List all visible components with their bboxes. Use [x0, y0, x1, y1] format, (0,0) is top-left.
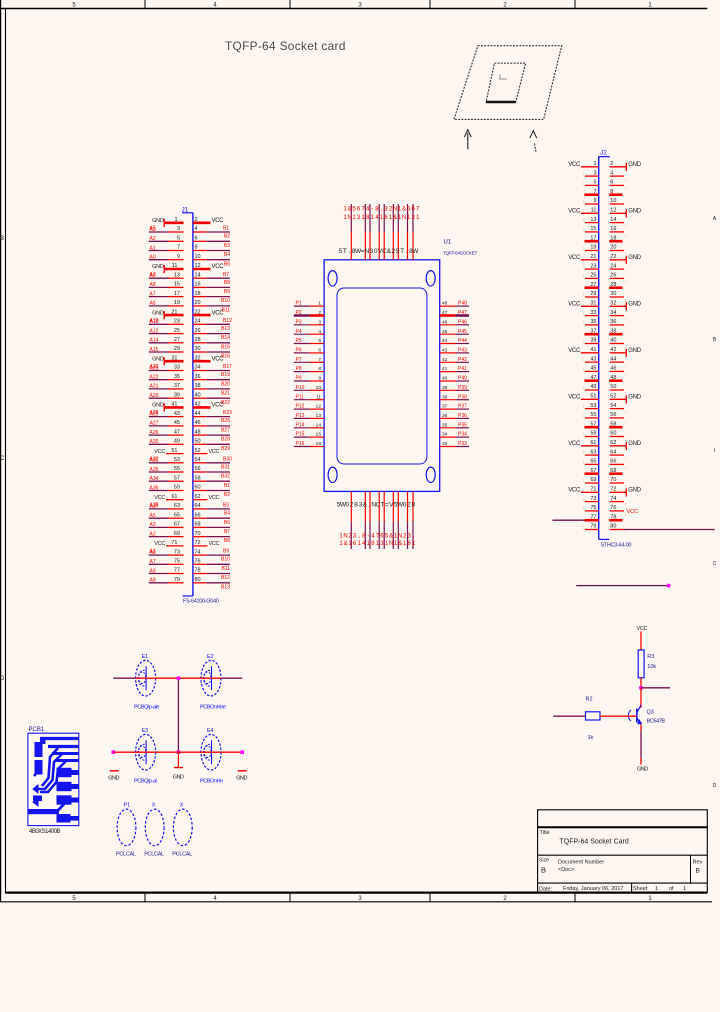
svg-text:VCC: VCC	[568, 162, 581, 168]
svg-text:39: 39	[590, 338, 596, 344]
svg-text:7: 7	[177, 245, 180, 251]
svg-text:.: .	[406, 248, 408, 255]
svg-text:B: B	[0, 236, 4, 242]
svg-text:P41: P41	[458, 366, 467, 372]
svg-text:46: 46	[442, 319, 448, 325]
svg-text:24: 24	[195, 319, 201, 325]
svg-text:67: 67	[174, 522, 180, 528]
svg-text:GND: GND	[152, 403, 164, 409]
svg-text:6: 6	[610, 180, 613, 186]
svg-text:E2: E2	[207, 654, 214, 660]
svg-text::: :	[625, 465, 626, 470]
svg-text:54: 54	[195, 457, 201, 463]
svg-text:78: 78	[610, 514, 616, 520]
svg-text:3: 3	[177, 226, 180, 232]
svg-text:P8: P8	[296, 366, 302, 372]
svg-text:N: N	[347, 215, 351, 221]
svg-text:P46: P46	[458, 319, 467, 325]
svg-text:48: 48	[610, 375, 616, 381]
svg-text:GND: GND	[628, 395, 641, 401]
svg-text:25: 25	[590, 273, 596, 279]
svg-text:55: 55	[590, 412, 596, 418]
svg-text:19: 19	[590, 245, 596, 251]
svg-text::: :	[625, 177, 626, 182]
svg-text:&: &	[393, 215, 397, 221]
svg-text::: :	[625, 186, 626, 191]
svg-text:P7: P7	[296, 357, 302, 363]
svg-text:A7: A7	[150, 559, 156, 565]
svg-text:55: 55	[174, 466, 180, 472]
svg-text::: :	[625, 223, 626, 228]
svg-text:B9: B9	[224, 289, 230, 295]
svg-text:P45: P45	[458, 329, 467, 335]
svg-text:VCC: VCC	[568, 255, 581, 261]
svg-text:VCC: VCC	[209, 495, 220, 501]
svg-text:57: 57	[590, 421, 596, 427]
svg-text:14: 14	[316, 422, 322, 428]
svg-text:GND: GND	[628, 255, 641, 261]
svg-text:13: 13	[316, 413, 322, 419]
svg-text:PCLCAL: PCLCAL	[116, 852, 136, 858]
svg-text:P43: P43	[458, 348, 467, 354]
svg-text:B12: B12	[223, 318, 232, 324]
svg-text:32: 32	[195, 355, 201, 361]
svg-text::: :	[583, 246, 584, 251]
svg-text:Sheet: Sheet	[633, 886, 648, 892]
svg-text:8: 8	[354, 502, 358, 509]
svg-text:C: C	[0, 456, 5, 462]
svg-text:P2: P2	[296, 310, 302, 316]
svg-text:31: 31	[590, 301, 596, 307]
svg-text:A1: A1	[150, 245, 156, 251]
svg-text:A30: A30	[150, 439, 159, 445]
svg-text:VCC: VCC	[154, 449, 165, 455]
svg-text::: :	[583, 497, 584, 502]
svg-text:28: 28	[610, 282, 616, 288]
svg-text:38: 38	[442, 394, 448, 400]
svg-text:FS-64100-G040: FS-64100-G040	[183, 599, 219, 605]
svg-text:T: T	[343, 248, 347, 255]
svg-text:48: 48	[195, 429, 201, 435]
svg-text:A20: A20	[150, 393, 159, 399]
svg-text:11: 11	[591, 208, 597, 214]
svg-text:9: 9	[318, 376, 321, 382]
svg-text:12: 12	[316, 404, 322, 410]
svg-text:2: 2	[350, 502, 354, 509]
svg-text:A2: A2	[150, 236, 156, 242]
svg-text:VCC: VCC	[154, 541, 165, 547]
svg-text:51: 51	[590, 394, 596, 400]
svg-text:2: 2	[318, 310, 321, 316]
svg-text::: :	[625, 437, 626, 442]
svg-text:4: 4	[610, 170, 613, 176]
svg-text:21: 21	[590, 254, 596, 260]
svg-text:80: 80	[610, 524, 616, 530]
svg-text:B10: B10	[221, 298, 230, 304]
svg-text:36: 36	[442, 413, 448, 419]
svg-text:T: T	[381, 502, 385, 509]
svg-text:35: 35	[590, 319, 596, 325]
svg-text::: :	[583, 264, 584, 269]
svg-text:76: 76	[610, 505, 616, 511]
svg-text:B27: B27	[221, 428, 230, 434]
svg-text:B14: B14	[221, 335, 230, 341]
svg-text:2: 2	[407, 502, 411, 509]
svg-text:&: &	[389, 534, 393, 540]
svg-text:17: 17	[174, 291, 180, 297]
svg-text:GND: GND	[628, 209, 641, 215]
svg-text:VCC: VCC	[212, 264, 225, 270]
svg-text:64: 64	[195, 503, 201, 509]
svg-text:B31: B31	[221, 464, 230, 470]
svg-text:16: 16	[610, 226, 616, 232]
svg-text:42: 42	[195, 402, 201, 408]
svg-text:42: 42	[442, 357, 448, 363]
svg-text:38: 38	[610, 328, 616, 334]
svg-text:Q3: Q3	[647, 710, 654, 716]
svg-text:49: 49	[174, 439, 180, 445]
svg-text:Friday, January 06, 2017: Friday, January 06, 2017	[563, 886, 623, 892]
svg-text:23: 23	[590, 263, 596, 269]
svg-text:GND: GND	[637, 767, 648, 773]
svg-text:18: 18	[610, 235, 616, 241]
svg-text::: :	[583, 506, 584, 511]
svg-text:75: 75	[590, 505, 596, 511]
svg-text::: :	[625, 409, 626, 414]
svg-text::: :	[625, 279, 626, 284]
svg-text:46: 46	[195, 420, 201, 426]
svg-text:P1: P1	[124, 803, 131, 809]
svg-text:VCC: VCC	[627, 509, 639, 515]
svg-text:VCC: VCC	[212, 356, 225, 362]
svg-text:B23: B23	[223, 410, 232, 416]
svg-text:A12: A12	[150, 328, 159, 334]
svg-text:52: 52	[195, 448, 201, 454]
svg-text:B32: B32	[221, 474, 230, 480]
svg-text:4: 4	[195, 226, 198, 232]
svg-text:A36: A36	[150, 485, 159, 491]
svg-text:A6: A6	[150, 301, 156, 307]
svg-text:5: 5	[593, 180, 596, 186]
svg-text::: :	[583, 199, 584, 204]
svg-text:P40: P40	[458, 376, 467, 382]
svg-text:VCC: VCC	[637, 626, 648, 632]
svg-text:35: 35	[442, 422, 448, 428]
svg-text:X: X	[180, 803, 184, 809]
svg-text:53: 53	[590, 403, 596, 409]
svg-text::: :	[625, 502, 626, 507]
svg-text:51: 51	[171, 448, 177, 454]
svg-text::: :	[583, 273, 584, 278]
svg-text::: :	[583, 292, 584, 297]
svg-text:P38: P38	[458, 394, 467, 400]
svg-text:T: T	[400, 248, 404, 255]
svg-text:P9: P9	[296, 376, 302, 382]
svg-text:10: 10	[610, 198, 616, 204]
svg-text:P35: P35	[458, 422, 467, 428]
svg-text:49: 49	[590, 384, 596, 390]
svg-text:42: 42	[610, 347, 616, 353]
svg-text:-: -	[367, 534, 369, 540]
svg-text:VCC: VCC	[568, 441, 581, 447]
svg-text:7: 7	[318, 357, 321, 363]
svg-text:65: 65	[590, 459, 596, 465]
svg-text:34: 34	[442, 432, 448, 438]
svg-text:43: 43	[590, 356, 596, 362]
svg-text:44: 44	[442, 338, 448, 344]
svg-text:P34: P34	[458, 432, 467, 438]
svg-text:34: 34	[195, 365, 201, 371]
svg-text:11: 11	[316, 394, 321, 400]
svg-text:B20: B20	[221, 381, 230, 387]
svg-text:B2: B2	[224, 234, 230, 240]
svg-text::: :	[625, 372, 626, 377]
svg-text:Size: Size	[539, 858, 549, 864]
svg-text:30: 30	[195, 346, 201, 352]
svg-text:P10: P10	[296, 385, 305, 391]
svg-text::: :	[625, 456, 626, 461]
svg-text:PCBOnHn: PCBOnHn	[200, 779, 223, 785]
svg-text:3: 3	[593, 170, 596, 176]
svg-text:P1: P1	[296, 301, 302, 307]
svg-text:53: 53	[174, 457, 180, 463]
svg-text:41: 41	[442, 366, 448, 372]
svg-text:37: 37	[174, 383, 180, 389]
svg-text:69: 69	[174, 531, 180, 537]
svg-text:73: 73	[174, 549, 180, 555]
svg-text:A0: A0	[150, 255, 156, 261]
svg-text:P47: P47	[458, 310, 467, 316]
svg-text:61: 61	[590, 440, 596, 446]
svg-text:B11: B11	[221, 566, 230, 572]
svg-text:A26: A26	[150, 430, 159, 436]
svg-text:36: 36	[195, 374, 201, 380]
svg-text:Title: Title	[540, 830, 550, 836]
svg-text:Rev: Rev	[693, 860, 703, 866]
svg-text:11: 11	[172, 263, 178, 269]
svg-text:P4: P4	[296, 329, 302, 335]
svg-text:70: 70	[610, 477, 616, 483]
svg-text:41: 41	[171, 402, 177, 408]
svg-text:23: 23	[174, 319, 180, 325]
svg-text:P5: P5	[296, 338, 302, 344]
svg-text:B2: B2	[224, 492, 230, 498]
svg-text:A35: A35	[150, 467, 159, 473]
svg-text:79: 79	[590, 524, 596, 530]
svg-text:5: 5	[177, 236, 180, 242]
svg-text:22: 22	[195, 309, 201, 315]
svg-text:37: 37	[590, 328, 596, 334]
svg-text:GND: GND	[152, 356, 164, 362]
svg-text:13: 13	[590, 217, 596, 223]
svg-text:A37: A37	[150, 504, 159, 510]
svg-text:10k: 10k	[647, 664, 656, 670]
svg-text:22: 22	[610, 254, 616, 260]
svg-text:A27: A27	[150, 421, 159, 427]
svg-text:12: 12	[610, 208, 616, 214]
svg-text:2: 2	[195, 217, 198, 223]
svg-text:-: -	[371, 207, 373, 213]
svg-text:P16: P16	[296, 441, 305, 447]
svg-text:40: 40	[442, 376, 448, 382]
svg-text:15: 15	[174, 282, 180, 288]
svg-text:59: 59	[590, 431, 596, 437]
svg-text:VCC: VCC	[154, 495, 165, 501]
svg-text:28: 28	[195, 337, 201, 343]
svg-text:B3: B3	[223, 503, 229, 509]
svg-text:37: 37	[442, 404, 448, 410]
svg-text:P14: P14	[296, 422, 305, 428]
svg-text:VCC: VCC	[568, 209, 581, 215]
svg-text:A9: A9	[150, 568, 156, 574]
svg-text:P48: P48	[458, 301, 467, 307]
svg-text:A22: A22	[150, 375, 159, 381]
svg-text:0: 0	[403, 502, 407, 509]
svg-text:GND: GND	[628, 348, 641, 354]
svg-text::: :	[583, 180, 584, 185]
svg-text:79: 79	[174, 577, 180, 583]
svg-text:47: 47	[174, 429, 180, 435]
svg-text:72: 72	[195, 540, 201, 546]
svg-text:26: 26	[610, 273, 616, 279]
svg-text:B30: B30	[223, 456, 232, 462]
svg-text:B7: B7	[223, 272, 229, 278]
svg-text:10: 10	[195, 254, 201, 260]
svg-text:B28: B28	[221, 437, 230, 443]
svg-text:62: 62	[610, 440, 616, 446]
svg-text:39: 39	[442, 385, 448, 391]
svg-text::: :	[583, 311, 584, 316]
svg-text:&: &	[344, 541, 348, 547]
svg-text:18: 18	[195, 291, 201, 297]
svg-text:60: 60	[610, 431, 616, 437]
svg-text:33: 33	[590, 310, 596, 316]
svg-text:&: &	[363, 502, 368, 509]
svg-text:58: 58	[610, 421, 616, 427]
svg-text:39: 39	[174, 392, 180, 398]
svg-text:B26: B26	[221, 418, 230, 424]
svg-text:15: 15	[316, 432, 322, 438]
svg-text::: :	[625, 316, 626, 321]
svg-text:27: 27	[590, 282, 596, 288]
svg-text:B17: B17	[223, 364, 232, 370]
svg-text:71: 71	[171, 540, 177, 546]
svg-text:1: 1	[683, 886, 686, 892]
svg-text:PCB1: PCB1	[29, 727, 45, 733]
svg-text:A8: A8	[150, 578, 156, 584]
svg-text:VCC: VCC	[212, 310, 225, 316]
svg-text:A3: A3	[150, 522, 156, 528]
svg-text:1: 1	[655, 886, 658, 892]
svg-text:GND: GND	[152, 264, 164, 270]
svg-text:70: 70	[195, 531, 201, 537]
svg-text:64: 64	[610, 449, 616, 455]
svg-text:5: 5	[318, 338, 321, 344]
svg-text:45: 45	[442, 329, 448, 335]
svg-text:P33: P33	[458, 441, 467, 447]
svg-text:Date:: Date:	[539, 887, 553, 893]
svg-text:2: 2	[391, 248, 395, 255]
svg-text:P11: P11	[296, 394, 305, 400]
svg-text:&: &	[348, 207, 352, 213]
svg-text:21: 21	[171, 309, 177, 315]
svg-text:61: 61	[171, 494, 177, 500]
svg-text:74: 74	[195, 549, 201, 555]
svg-text:48: 48	[442, 301, 448, 307]
svg-text:9: 9	[177, 254, 180, 260]
svg-text:VCC: VCC	[568, 395, 581, 401]
svg-text:A14: A14	[150, 338, 159, 344]
svg-text:10: 10	[316, 385, 322, 391]
svg-text:36: 36	[610, 319, 616, 325]
svg-text:B29: B29	[221, 446, 230, 452]
svg-text:N: N	[343, 534, 347, 540]
svg-text:A31: A31	[150, 458, 159, 464]
svg-text::: :	[583, 171, 584, 176]
svg-text:59: 59	[174, 485, 180, 491]
svg-text:40: 40	[195, 392, 201, 398]
svg-text::: :	[583, 404, 584, 409]
svg-text:68: 68	[195, 522, 201, 528]
svg-text::: :	[625, 298, 626, 303]
svg-text:B9: B9	[223, 549, 229, 555]
svg-text::: :	[583, 450, 584, 455]
svg-text:1: 1	[318, 301, 321, 307]
svg-text:1: 1	[174, 217, 177, 223]
svg-text:B13: B13	[221, 584, 230, 590]
svg-text:B15: B15	[221, 344, 230, 350]
svg-text:14: 14	[195, 272, 201, 278]
svg-text:P12: P12	[296, 404, 305, 410]
svg-text::: :	[625, 363, 626, 368]
svg-text::: :	[583, 339, 584, 344]
svg-text:E3: E3	[142, 728, 149, 734]
svg-text:VCC: VCC	[568, 488, 581, 494]
svg-text:B7: B7	[224, 529, 230, 535]
svg-text:A13: A13	[150, 319, 159, 325]
svg-text:GND: GND	[628, 488, 641, 494]
svg-text:<Doc>: <Doc>	[558, 867, 574, 873]
svg-text:B8: B8	[224, 280, 230, 286]
svg-text:20: 20	[610, 245, 616, 251]
svg-text:A34: A34	[150, 476, 159, 482]
svg-text:40: 40	[610, 338, 616, 344]
svg-text:8: 8	[318, 366, 321, 372]
svg-text:PCBOnHne: PCBOnHne	[200, 705, 226, 711]
svg-text:44: 44	[610, 356, 616, 362]
svg-text:VCC: VCC	[209, 449, 220, 455]
svg-text:&: &	[402, 207, 406, 213]
svg-text:B1: B1	[223, 226, 229, 232]
svg-text:1: 1	[593, 161, 596, 167]
svg-text:TQFP-64 Socket card: TQFP-64 Socket card	[225, 39, 346, 53]
svg-text:&: &	[398, 541, 402, 547]
svg-text:8: 8	[610, 189, 613, 195]
svg-text:.: .	[348, 248, 350, 255]
svg-text::: :	[583, 385, 584, 390]
svg-text:J2: J2	[600, 150, 607, 157]
svg-text:12: 12	[195, 263, 201, 269]
svg-text:P39: P39	[458, 385, 467, 391]
svg-text:77: 77	[590, 514, 596, 520]
svg-text:29: 29	[590, 291, 596, 297]
svg-text:A25: A25	[150, 411, 159, 417]
svg-text:80: 80	[195, 577, 201, 583]
svg-text:0: 0	[345, 502, 349, 509]
svg-text::: :	[625, 251, 626, 256]
svg-text:VCC: VCC	[212, 218, 225, 224]
svg-text:STHC3-64-00: STHC3-64-00	[601, 542, 632, 548]
